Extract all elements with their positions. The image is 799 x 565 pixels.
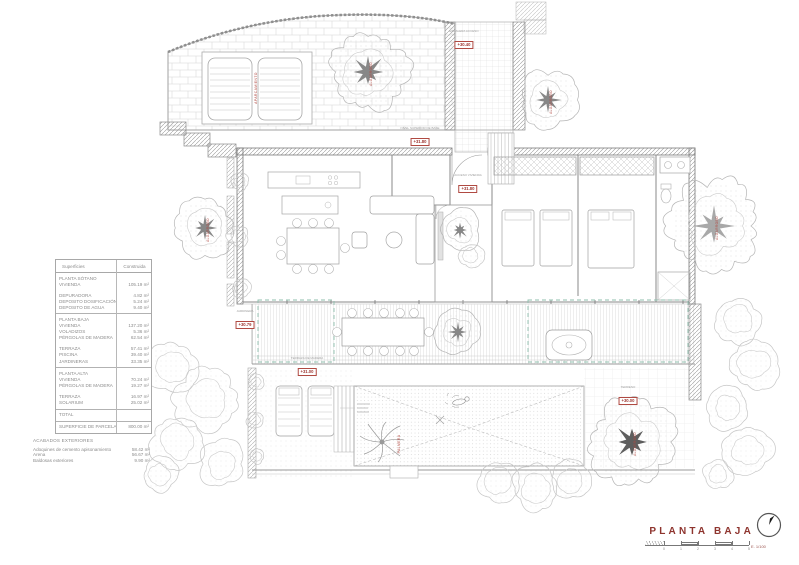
- finishes-heading: ACABADOS EXTERIORES: [33, 438, 150, 443]
- coffee-table: [386, 232, 402, 248]
- armchair: [352, 232, 367, 248]
- kitchen: [268, 172, 360, 214]
- tree-species-label: ALGARROBO: [369, 62, 373, 86]
- garden-steps: [390, 466, 418, 478]
- driveway-area: [168, 15, 455, 130]
- living-room: [352, 196, 443, 264]
- exterior-wall: [237, 148, 452, 155]
- entry-door: [452, 155, 482, 185]
- scale-label: E. 1/100: [751, 544, 766, 549]
- finish-row: Baldosas exteriores9.90 m²: [33, 458, 150, 464]
- table-row: TOTAL: [56, 412, 151, 418]
- kitchen-island: [282, 196, 338, 214]
- sheet-title: PLANTA BAJA: [648, 526, 754, 537]
- col-header-superficies: Superficies: [56, 264, 118, 269]
- wardrobe: [494, 157, 576, 175]
- sofa: [370, 196, 434, 214]
- plan-sheet: ALGARROBOALGARROBOALGARROBOALGARROBOALGA…: [0, 0, 799, 565]
- pool: [340, 386, 584, 466]
- row-label: SUPERFICIE DE PARCELA: [56, 424, 118, 430]
- tree-species-label: ALGARROBO: [549, 90, 553, 114]
- scale-number: 3: [714, 547, 716, 551]
- jacuzzi: [546, 330, 592, 360]
- row-label: TOTAL: [56, 412, 118, 418]
- graphic-scale: 012345 E. 1/100: [645, 541, 757, 555]
- table-row: JARDINERAS33.35 m²: [56, 359, 151, 365]
- scale-number: 1: [680, 547, 682, 551]
- finishes-rows: Adoquines de cemento apisonamiento58.42 …: [33, 447, 150, 465]
- access-corridor: [445, 2, 546, 152]
- planter-wall: [227, 242, 234, 278]
- bush: [714, 298, 762, 346]
- sun-lounger: [308, 386, 334, 436]
- parked-car: [208, 58, 252, 120]
- tree: ALGARROBO: [663, 176, 757, 274]
- bush: [232, 279, 252, 298]
- table-column-divider: [116, 260, 117, 433]
- wardrobe: [580, 157, 654, 175]
- area-table: Superficies Construida PLANTA SÓTANOVIVI…: [55, 259, 152, 434]
- tree: ALGARROBO: [174, 197, 233, 259]
- tree: [440, 207, 479, 250]
- area-table-group: PLANTA BAJAVIVIENDA137.20 m²VOLADIZOS5.3…: [56, 313, 151, 367]
- bush: [200, 438, 244, 486]
- row-value: [118, 412, 151, 418]
- area-table-group: PLANTA ALTAVIVIENDA70.24 m²PÉRGOLAS DE M…: [56, 367, 151, 408]
- table-row: SUPERFICIE DE PARCELA800.00 m²: [56, 424, 151, 430]
- retaining-wall: [513, 22, 525, 130]
- row-value: 9.40 m²: [118, 305, 151, 311]
- north-arrow-icon: [755, 511, 783, 539]
- plan-red-label: PALMERA: [397, 434, 401, 453]
- area-table-header: Superficies Construida: [56, 260, 151, 273]
- scale-number: 5: [748, 547, 750, 551]
- area-table-group: TOTAL: [56, 409, 151, 421]
- parked-car: [258, 58, 302, 120]
- col-header-construida: Construida: [118, 264, 151, 269]
- scale-number: 4: [731, 547, 733, 551]
- tree: ALGARROBO: [520, 70, 579, 131]
- tree-species-label: ALGARROBO: [633, 432, 637, 456]
- bed: [588, 210, 634, 268]
- area-table-body: PLANTA SÓTANOVIVIENDA105.19 m²DEPURADORA…: [56, 273, 151, 433]
- row-value: 25.02 m²: [118, 400, 151, 406]
- plan-red-label: APARCAMIENTO: [254, 72, 258, 104]
- exterior-wall: [488, 148, 695, 155]
- row-label: SOLARIUM: [56, 400, 118, 406]
- table-row: DEPOSITO DE AGUA9.40 m²: [56, 305, 151, 311]
- row-value: 800.00 m²: [118, 424, 151, 430]
- pool-steps: [334, 386, 354, 452]
- tree-species-label: ALGARROBO: [206, 218, 210, 242]
- scale-number: 0: [663, 547, 665, 551]
- sofa: [416, 214, 434, 264]
- row-label: DEPOSITO DE AGUA: [56, 305, 118, 311]
- exterior-finishes: ACABADOS EXTERIORES Adoquines de cemento…: [33, 438, 150, 464]
- area-table-group: SUPERFICIE DE PARCELA800.00 m²: [56, 421, 151, 433]
- retaining-wall: [445, 22, 455, 130]
- side-wall: [689, 304, 701, 400]
- scale-number: 2: [697, 547, 699, 551]
- row-label: JARDINERAS: [56, 359, 118, 365]
- sun-lounger: [276, 386, 302, 436]
- table-row: SOLARIUM25.02 m²: [56, 400, 151, 406]
- bush: [729, 339, 780, 390]
- bush: [706, 385, 748, 431]
- bed: [540, 210, 572, 266]
- dining-table: [277, 219, 350, 274]
- tree-species-label: ALGARROBO: [715, 216, 719, 240]
- area-table-group: PLANTA SÓTANOVIVIENDA105.19 m²DEPURADORA…: [56, 273, 151, 313]
- bed: [502, 210, 534, 266]
- row-value: 33.35 m²: [118, 359, 151, 365]
